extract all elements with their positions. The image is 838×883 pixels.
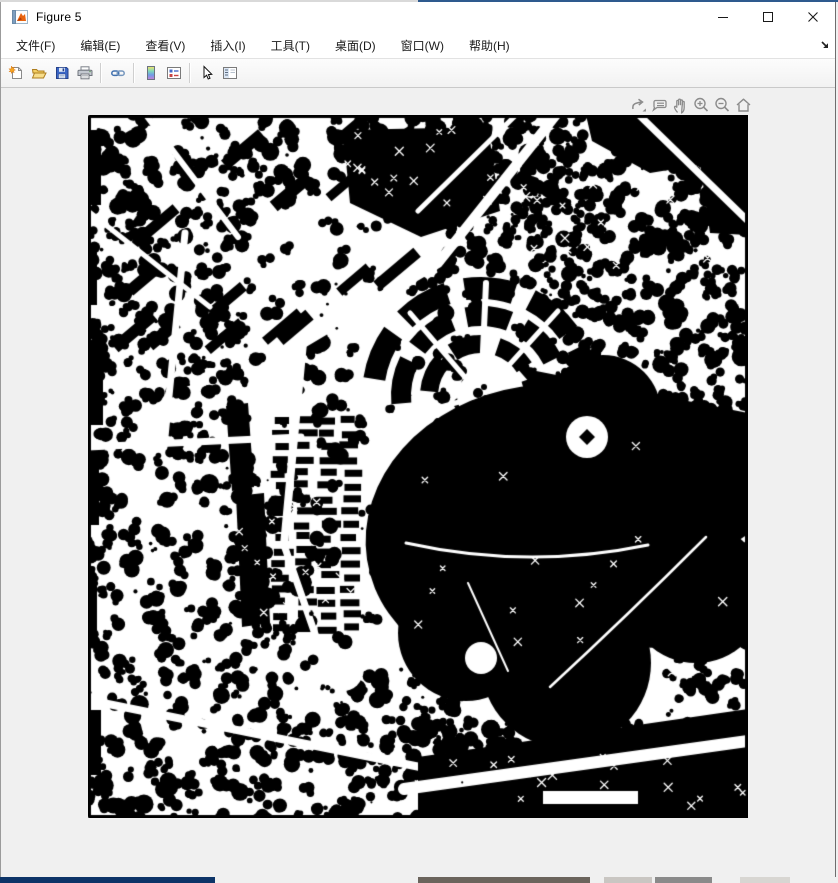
zoom-in-button[interactable] bbox=[691, 95, 711, 114]
printer-icon bbox=[77, 65, 93, 81]
axes-toolbar bbox=[628, 95, 753, 114]
open-file-button[interactable] bbox=[27, 62, 50, 85]
menu-window[interactable]: 窗口(W) bbox=[395, 33, 450, 58]
background-window-fragment bbox=[418, 877, 590, 883]
home-icon bbox=[734, 96, 753, 114]
menu-file[interactable]: 文件(F) bbox=[10, 33, 61, 58]
insert-legend-button[interactable] bbox=[162, 62, 185, 85]
edit-plot-button[interactable] bbox=[195, 62, 218, 85]
menu-edit[interactable]: 编辑(E) bbox=[74, 33, 126, 58]
pan-button[interactable] bbox=[670, 95, 690, 114]
legend-icon bbox=[166, 65, 182, 81]
figure-toolbar bbox=[1, 58, 835, 88]
figure-axes[interactable] bbox=[88, 115, 748, 818]
property-inspector-button[interactable] bbox=[218, 62, 241, 85]
close-button[interactable] bbox=[790, 2, 835, 32]
minimize-button[interactable] bbox=[700, 2, 745, 32]
insert-colorbar-button[interactable] bbox=[139, 62, 162, 85]
toolbar-separator bbox=[189, 63, 191, 83]
background-window-fragment bbox=[604, 877, 652, 883]
datatips-button[interactable] bbox=[649, 95, 669, 114]
matlab-logo-icon bbox=[12, 9, 28, 25]
property-panel-icon bbox=[222, 65, 238, 81]
pointer-arrow-icon bbox=[199, 65, 215, 81]
background-window-fragment bbox=[740, 877, 790, 883]
menu-help[interactable]: 帮助(H) bbox=[463, 33, 516, 58]
menu-tools[interactable]: 工具(T) bbox=[265, 33, 316, 58]
pan-hand-icon bbox=[671, 96, 690, 114]
close-icon bbox=[805, 9, 821, 25]
dock-figure-arrow-icon[interactable] bbox=[818, 38, 832, 52]
background-window-fragment bbox=[655, 877, 712, 883]
export-button[interactable] bbox=[628, 95, 648, 114]
background-taskbar-edge bbox=[0, 877, 838, 883]
datatip-icon bbox=[650, 96, 669, 114]
figure-client-area bbox=[2, 88, 834, 877]
figure-window: Figure 5 文件(F) 编辑(E) 查看(V) 插入(I) bbox=[0, 2, 836, 877]
zoom-out-icon bbox=[713, 96, 732, 114]
maximize-icon bbox=[760, 9, 776, 25]
binary-map-image[interactable] bbox=[88, 115, 748, 818]
menu-view[interactable]: 查看(V) bbox=[139, 33, 191, 58]
link-plot-button[interactable] bbox=[106, 62, 129, 85]
toolbar-separator bbox=[133, 63, 135, 83]
save-floppy-icon bbox=[54, 65, 70, 81]
menu-desktop[interactable]: 桌面(D) bbox=[329, 33, 382, 58]
taskbar-fragment[interactable] bbox=[0, 877, 215, 883]
save-figure-button[interactable] bbox=[50, 62, 73, 85]
title-bar[interactable]: Figure 5 bbox=[1, 2, 835, 32]
menu-bar: 文件(F) 编辑(E) 查看(V) 插入(I) 工具(T) 桌面(D) 窗口(W… bbox=[1, 32, 835, 58]
colorbar-icon bbox=[143, 65, 159, 81]
export-icon bbox=[629, 96, 648, 114]
window-controls bbox=[700, 2, 835, 32]
open-folder-icon bbox=[31, 65, 47, 81]
new-figure-button[interactable] bbox=[4, 62, 27, 85]
menu-insert[interactable]: 插入(I) bbox=[204, 33, 251, 58]
toolbar-separator bbox=[100, 63, 102, 83]
zoom-out-button[interactable] bbox=[712, 95, 732, 114]
maximize-button[interactable] bbox=[745, 2, 790, 32]
new-document-icon bbox=[8, 65, 24, 81]
print-figure-button[interactable] bbox=[73, 62, 96, 85]
window-title: Figure 5 bbox=[36, 10, 82, 24]
minimize-icon bbox=[715, 9, 731, 25]
zoom-in-icon bbox=[692, 96, 711, 114]
restore-view-button[interactable] bbox=[733, 95, 753, 114]
chain-link-icon bbox=[110, 65, 126, 81]
